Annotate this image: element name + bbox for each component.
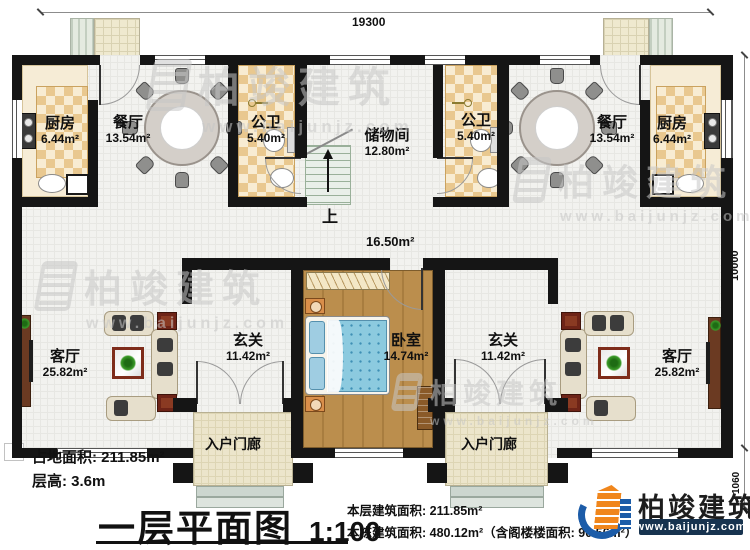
wall xyxy=(12,55,22,100)
label-kitchen-left: 厨房6.44m² xyxy=(28,116,92,146)
wall xyxy=(721,55,733,100)
label-corridor-area: 16.50m² xyxy=(366,234,414,249)
wall xyxy=(640,55,733,65)
floor-plan: 厨房6.44m² 餐厅13.54m² 公卫5.40m² 储物间12.80m² 公… xyxy=(0,0,750,550)
wall xyxy=(228,197,307,207)
wall xyxy=(295,55,307,158)
wardrobe xyxy=(306,272,390,290)
shower-left-arm xyxy=(256,102,268,104)
label-dining-left: 餐厅13.54m² xyxy=(96,115,160,145)
wall xyxy=(545,398,568,412)
chair xyxy=(175,68,189,84)
label-dining-right: 餐厅13.54m² xyxy=(580,115,644,145)
pillow xyxy=(309,321,325,354)
cushion xyxy=(114,400,128,416)
wall xyxy=(390,55,425,65)
cushion xyxy=(157,338,173,352)
wall xyxy=(647,197,733,207)
shower-right xyxy=(464,99,472,107)
wall xyxy=(140,55,155,65)
porch-left-step xyxy=(196,486,284,497)
canopy-left-slats xyxy=(70,18,94,58)
table-top-inner xyxy=(535,106,579,150)
wall xyxy=(433,197,509,207)
wall xyxy=(12,55,100,65)
window xyxy=(425,55,465,65)
label-porch-right: 入户门廊 xyxy=(461,434,517,454)
label-porch-left: 入户门廊 xyxy=(205,434,261,454)
title-underline xyxy=(96,541,348,544)
company-logo-icon xyxy=(576,483,636,543)
label-bedroom: 卧室14.74m² xyxy=(376,333,436,363)
label-bath-right: 公卫5.40m² xyxy=(446,113,506,143)
wall xyxy=(590,55,600,65)
canopy-right-slats xyxy=(649,18,673,58)
bedroom-door xyxy=(421,268,423,310)
porch-column xyxy=(548,463,568,483)
shower-left xyxy=(248,99,256,107)
window xyxy=(540,55,590,65)
porch-column xyxy=(173,463,193,483)
land-area-text: 占地面积: 211.85m² xyxy=(32,446,165,467)
cushion xyxy=(610,315,624,331)
stair-arrow-line xyxy=(327,158,329,192)
wall xyxy=(433,55,443,158)
porch-right-step xyxy=(450,486,544,497)
wall xyxy=(182,258,390,270)
chair xyxy=(175,172,189,188)
coffee-plant-left xyxy=(120,355,136,371)
bed-blanket-fold xyxy=(327,320,343,392)
wall xyxy=(283,398,303,412)
sink-left xyxy=(38,174,66,193)
side-table xyxy=(561,312,581,330)
wall xyxy=(173,398,197,412)
dimension-top-value: 19300 xyxy=(352,15,385,29)
label-hall-left: 玄关11.42m² xyxy=(215,333,281,363)
chair xyxy=(135,154,156,175)
window xyxy=(592,448,678,458)
wall xyxy=(205,55,330,65)
nightstand-bottom xyxy=(305,396,325,412)
chair xyxy=(583,154,604,175)
sink-right xyxy=(676,174,704,193)
chair xyxy=(510,81,531,102)
shower-right-arm xyxy=(452,102,464,104)
floor-height-text: 层高: 3.6m xyxy=(32,470,105,491)
label-bath-left: 公卫5.40m² xyxy=(236,115,296,145)
chair xyxy=(208,154,229,175)
wall xyxy=(182,258,192,304)
wall xyxy=(548,258,558,304)
window xyxy=(12,100,22,158)
kitchen-right-door xyxy=(639,65,641,105)
chair xyxy=(208,81,229,102)
window xyxy=(330,55,390,65)
canopy-left xyxy=(94,18,140,58)
plant-right xyxy=(710,320,721,331)
wall xyxy=(678,448,733,458)
cushion xyxy=(565,362,581,376)
window xyxy=(335,448,403,458)
kitchen-left-door xyxy=(99,65,101,105)
coffee-plant-right xyxy=(606,355,622,371)
cushion xyxy=(157,362,173,376)
label-hall-right: 玄关11.42m² xyxy=(470,333,536,363)
stove-right xyxy=(704,113,720,149)
wall xyxy=(291,258,303,458)
chair xyxy=(550,172,564,188)
chair xyxy=(550,68,564,84)
cushion xyxy=(112,315,126,331)
fridge-left xyxy=(66,174,89,195)
label-living-left: 客厅25.82m² xyxy=(33,349,97,379)
label-kitchen-right: 厨房6.44m² xyxy=(640,116,704,146)
chair xyxy=(510,154,531,175)
chair xyxy=(583,81,604,102)
chair xyxy=(135,81,156,102)
canopy-right xyxy=(603,18,649,58)
label-living-right: 客厅25.82m² xyxy=(645,349,709,379)
floor-area-text: 本层建筑面积: 211.85m² xyxy=(347,500,482,519)
cushion xyxy=(130,315,144,331)
fridge-right xyxy=(652,174,674,195)
dimension-line-top xyxy=(40,12,712,13)
side-table xyxy=(157,312,177,330)
cushion xyxy=(592,315,606,331)
cushion xyxy=(594,400,608,416)
label-storage: 储物间12.80m² xyxy=(347,128,427,158)
nightstand-top xyxy=(305,298,325,314)
stair-arrow-head xyxy=(323,149,333,159)
dimension-line-right xyxy=(744,55,745,508)
label-stairs-up: 上 xyxy=(322,203,338,227)
table-top-inner xyxy=(160,106,204,150)
cushion xyxy=(565,338,581,352)
company-logo-url: www.baijunjz.com xyxy=(639,519,743,535)
window xyxy=(155,55,205,65)
porch-column xyxy=(427,463,447,483)
wall xyxy=(428,398,455,412)
wall xyxy=(557,448,592,458)
porch-column xyxy=(293,463,313,483)
wall xyxy=(12,197,98,207)
window xyxy=(721,100,733,158)
pillow xyxy=(309,357,325,390)
